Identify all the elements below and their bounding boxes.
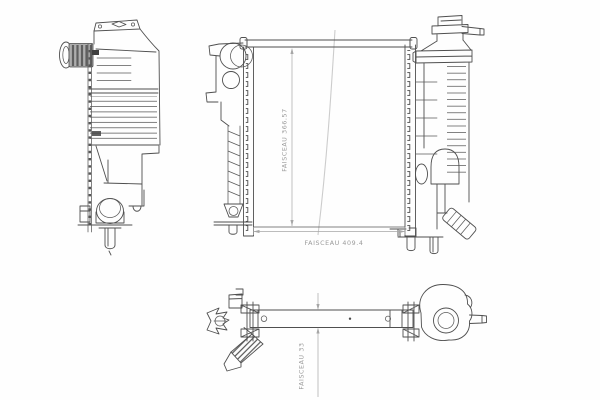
clamp-mark-mid [92, 131, 101, 136]
core-depth-arrows [316, 304, 319, 334]
inlet-port [223, 72, 240, 89]
core-width-label: FAISCEAU 409.4 [305, 240, 364, 247]
top-view-left-bracket [207, 289, 259, 341]
left-tank-side-view [60, 20, 161, 255]
radiator-front-view [206, 30, 417, 251]
hose-bore [63, 47, 69, 64]
filler-neck-side [432, 16, 468, 42]
core-width-dimension-line [254, 227, 406, 235]
top-view-right-bracket [403, 302, 419, 341]
bracket-holes-left [246, 52, 251, 232]
radiator-top-view [207, 285, 487, 372]
clamp-mark-top [92, 50, 99, 55]
hatched-hose-stub [231, 334, 263, 363]
right-tank-long-ticks [416, 82, 437, 154]
drain-boss-outer [97, 199, 124, 224]
scan-crease-line [318, 30, 335, 235]
dimension-annotations: FAISCEAU 366.57 FAISCEAU 409.4 FAISCEAU … [254, 48, 406, 397]
cap-rivet-right [131, 23, 134, 26]
overflow-pipe [462, 27, 484, 36]
drawing-canvas: FAISCEAU 366.57 FAISCEAU 409.4 FAISCEAU … [0, 0, 600, 400]
outlet-stub [441, 207, 477, 240]
core-top-header [245, 40, 412, 47]
bar-hole-left [261, 316, 267, 322]
filler-cap-outer [434, 308, 459, 333]
core-bar [250, 310, 413, 328]
left-mount-ladder [228, 126, 240, 204]
filler-neck-outer [220, 43, 246, 69]
cap-rivet-left [98, 25, 101, 28]
left-tank-profile [206, 43, 243, 126]
radiator-technical-drawing: FAISCEAU 366.57 FAISCEAU 409.4 FAISCEAU … [0, 0, 600, 400]
bar-dot-mid [349, 318, 351, 320]
core-height-label: FAISCEAU 366.57 [282, 108, 289, 172]
bracket-holes-right [407, 50, 412, 232]
outlet-ribs [447, 211, 470, 234]
core-depth-label: FAISCEAU 33 [299, 342, 306, 389]
side-boss [416, 164, 428, 184]
right-tank-ribs [447, 64, 466, 174]
left-tank-upper-ribs [97, 58, 131, 81]
drain-boss-inner [100, 199, 121, 218]
right-foot [390, 229, 415, 251]
left-foot-hole [229, 207, 238, 216]
filler-cap-inner [438, 313, 454, 329]
angled-outlet [441, 207, 477, 240]
